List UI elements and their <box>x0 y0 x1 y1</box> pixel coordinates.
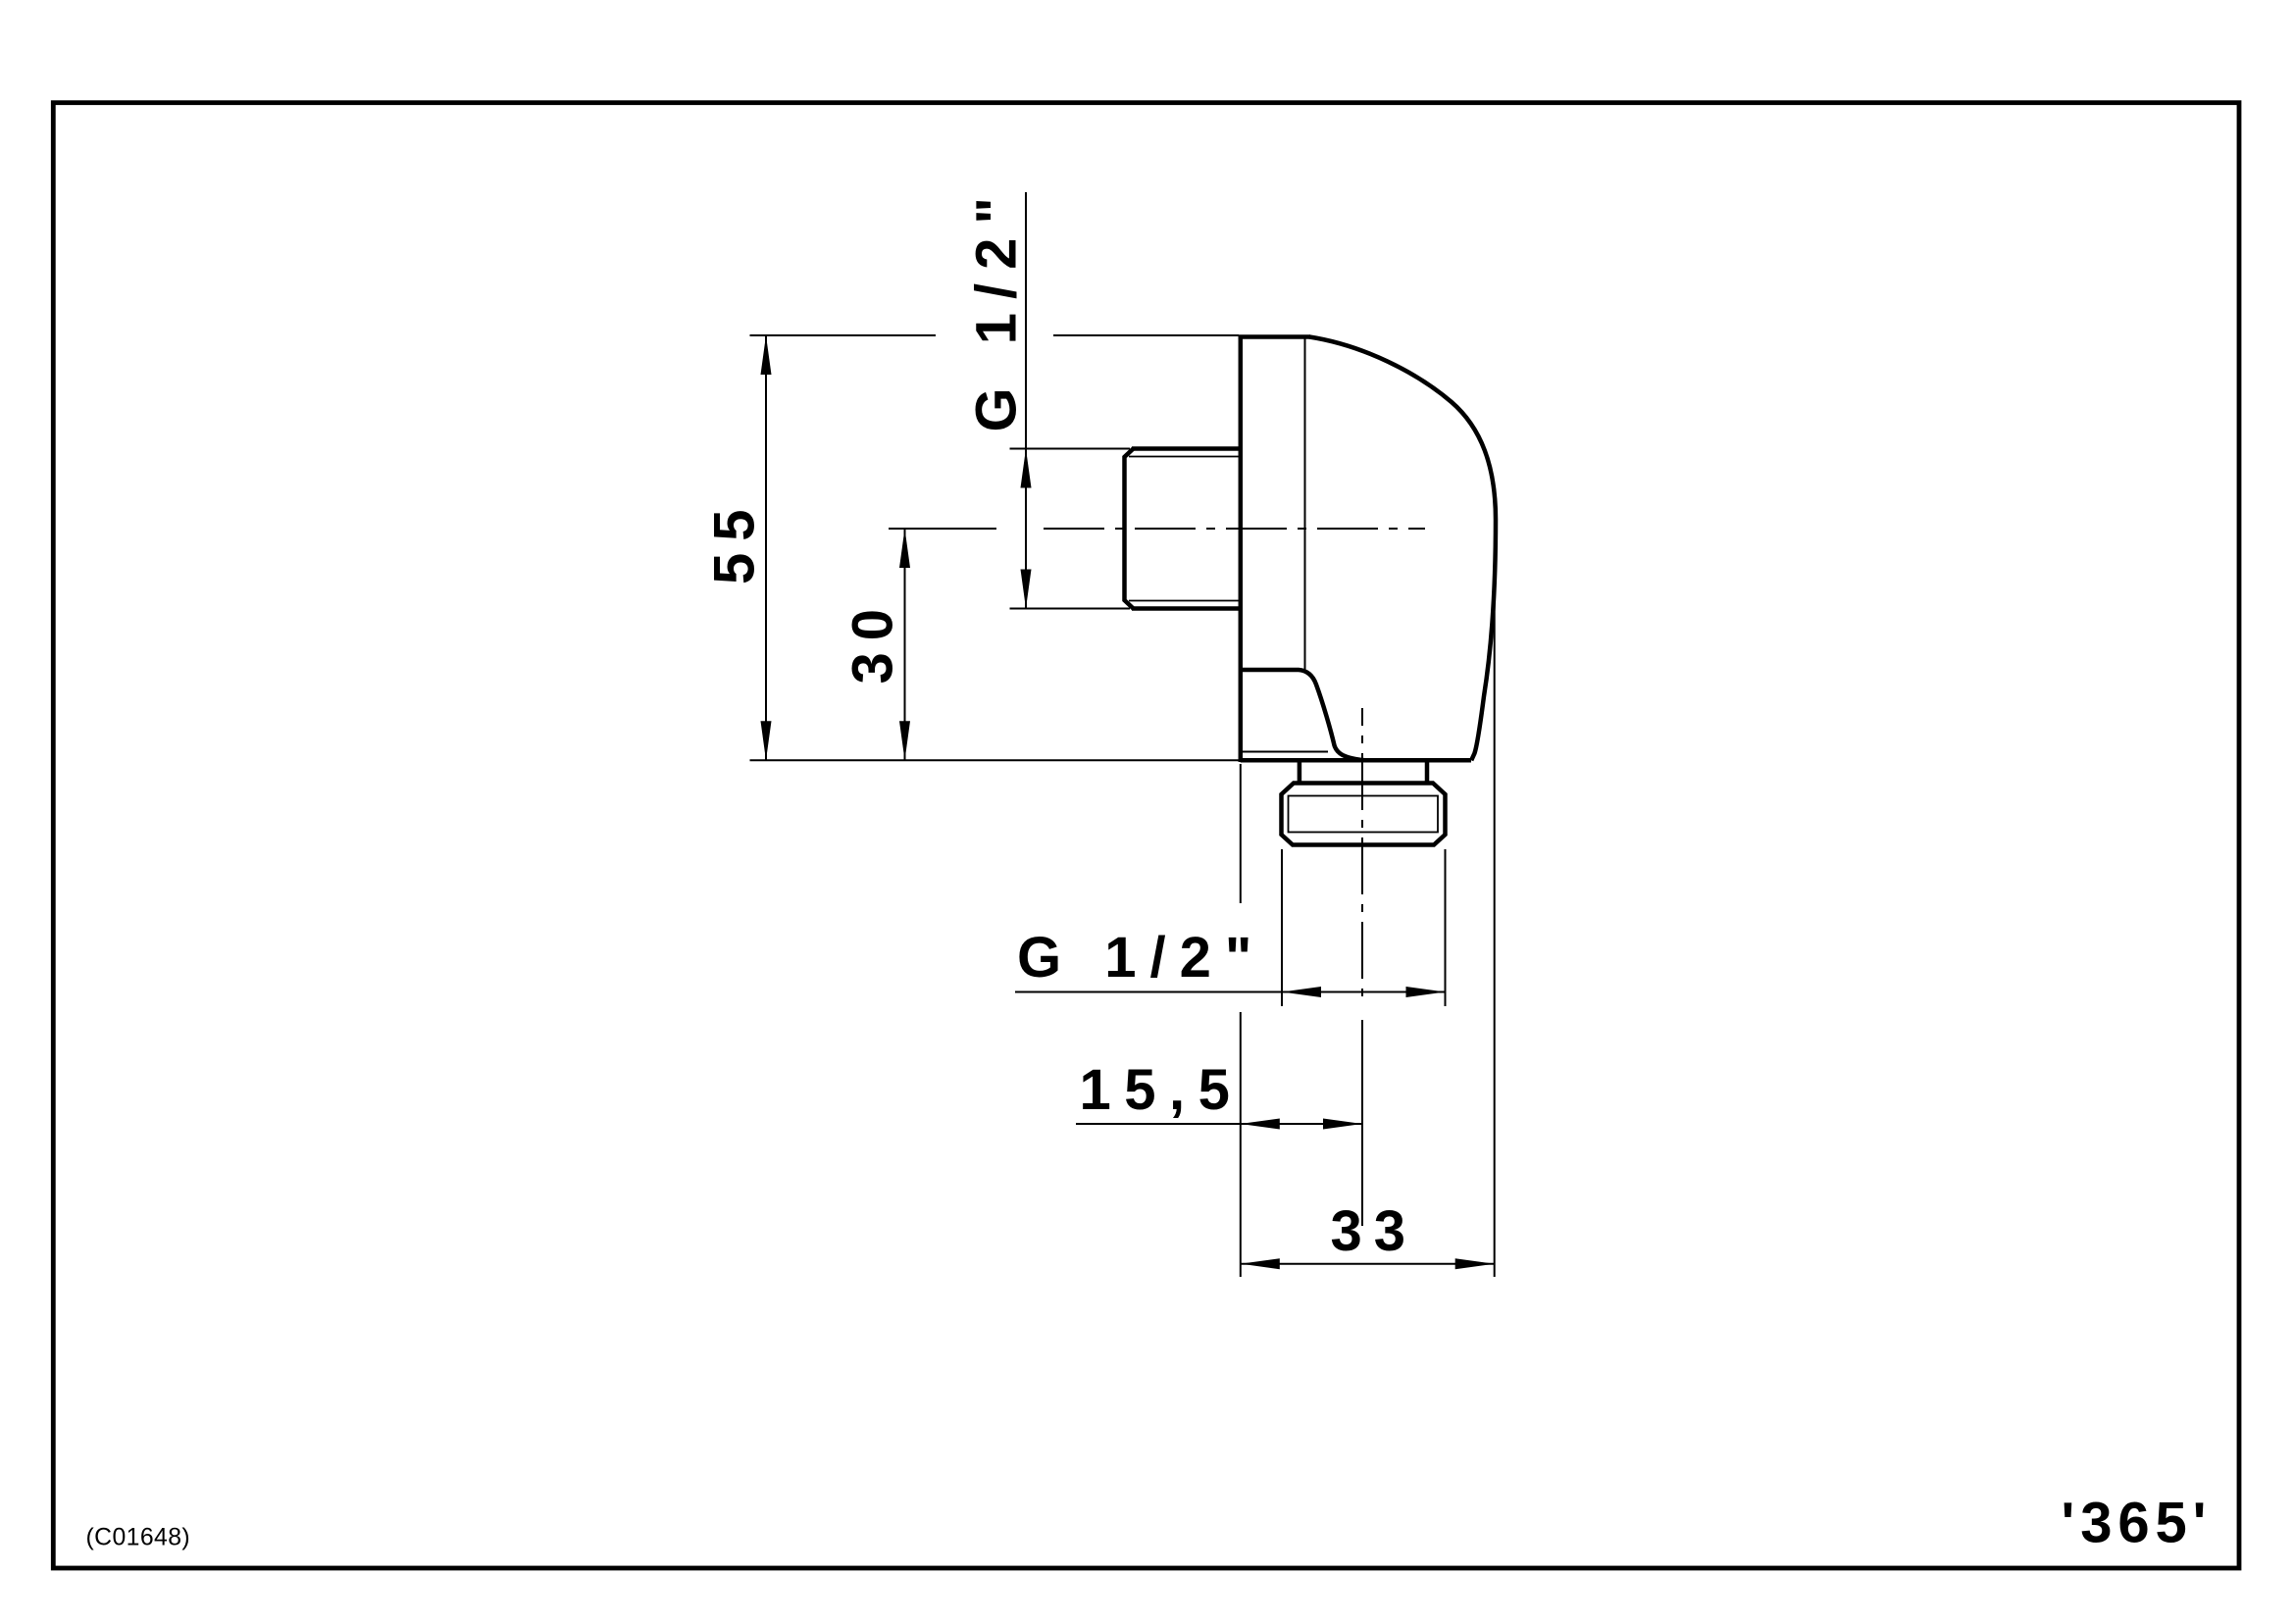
svg-text:G 1/2": G 1/2" <box>965 183 1029 431</box>
svg-text:30: 30 <box>841 597 905 685</box>
svg-text:(C01648): (C01648) <box>86 1525 191 1551</box>
svg-text:G 1/2": G 1/2" <box>1017 926 1265 990</box>
svg-text:55: 55 <box>703 497 767 584</box>
svg-text:15,5: 15,5 <box>1080 1058 1244 1122</box>
svg-text:'365': '365' <box>2062 1492 2213 1555</box>
svg-text:33: 33 <box>1331 1199 1418 1263</box>
